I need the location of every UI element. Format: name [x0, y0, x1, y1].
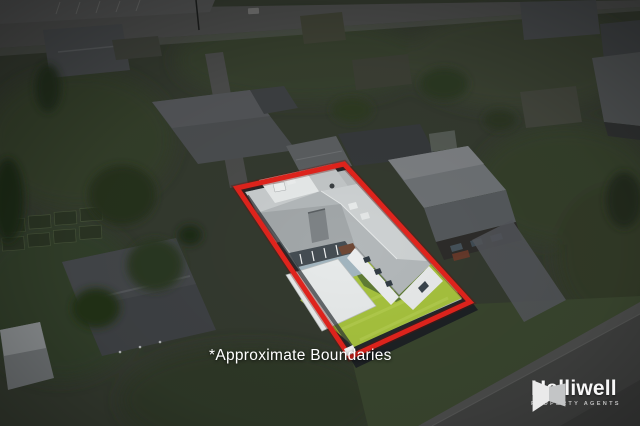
halliwell-flag-icon: [531, 378, 567, 413]
agency-logo: Halliwell PROPERTY AGENTS: [531, 378, 621, 407]
listing-photo: *Approximate Boundaries Halliwell PROPER…: [0, 0, 640, 426]
boundary-disclaimer: *Approximate Boundaries: [209, 347, 392, 365]
